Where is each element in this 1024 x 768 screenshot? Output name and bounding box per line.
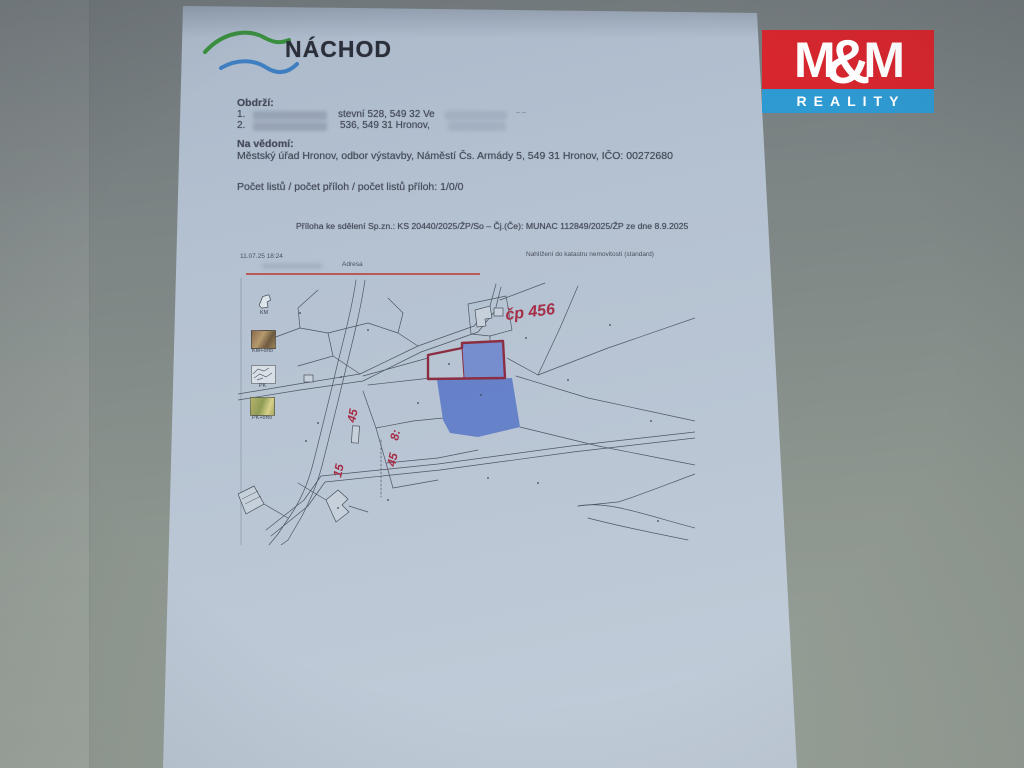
redacted-name <box>253 111 327 120</box>
cadastral-map: čp 456 45 8: 45 15 <box>238 278 695 545</box>
map-tab-underline <box>246 273 480 275</box>
layer-pk-orto-label: PK+orto <box>244 415 280 421</box>
layer-pk-orto-thumbnail <box>250 397 275 416</box>
map-tab-adresa: Adresa <box>342 261 363 268</box>
redacted-name <box>448 122 506 131</box>
layer-km-orto-thumbnail <box>251 330 276 349</box>
trailing-mark: – – <box>516 109 526 116</box>
recipient-address-fragment: stevní 528, 549 32 Ve <box>338 109 435 120</box>
attachment-reference-line: Příloha ke sdělení Sp.zn.: KS 20440/2025… <box>296 221 688 231</box>
recipient-number: 2. <box>237 120 245 131</box>
recipient-number: 1. <box>237 109 245 120</box>
wall-left-panel <box>0 0 90 768</box>
layer-pk-scribble <box>251 365 274 382</box>
mm-logo-red-block: M & M <box>762 30 934 89</box>
redacted-name <box>445 111 507 120</box>
highlight-parcel-lower <box>437 378 520 437</box>
photo-of-document: NÁCHOD Obdrží: 1. stevní 528, 549 32 Ve … <box>0 0 1024 768</box>
handwritten-parcel-mark: 8: <box>387 428 403 441</box>
nachod-logo-text: NÁCHOD <box>285 36 392 63</box>
layer-km-icon <box>256 293 272 309</box>
recipient-address-fragment: 536, 549 31 Hronov, <box>340 120 430 131</box>
map-tab-blurred <box>262 263 322 269</box>
highlight-parcel-upper <box>462 341 505 378</box>
handwritten-parcel-mark: 45 <box>344 407 361 424</box>
fyi-line: Městský úřad Hronov, odbor výstavby, Nám… <box>237 150 673 162</box>
mm-reality-logo: M & M REALITY <box>762 30 934 113</box>
mm-logo-ampersand: & <box>826 32 871 94</box>
layer-km-label: KM <box>250 310 278 316</box>
recipients-heading: Obdrží: <box>237 97 274 109</box>
handwritten-parcel-mark: 15 <box>330 462 347 478</box>
handwritten-house-number: čp 456 <box>504 301 556 324</box>
map-printed-timestamp: 11.07.25 18:24 <box>240 253 283 260</box>
fyi-heading: Na vědomí: <box>237 138 294 150</box>
layer-km-orto-label: KM+orto <box>246 348 279 354</box>
sheet-counts-line: Počet listů / počet příloh / počet listů… <box>237 181 463 193</box>
redacted-name <box>253 122 327 131</box>
map-source-title: Nahlížení do katastru nemovitostí (stand… <box>526 251 654 258</box>
handwritten-parcel-mark: 45 <box>384 451 401 468</box>
layer-pk-label: PK <box>251 383 274 389</box>
